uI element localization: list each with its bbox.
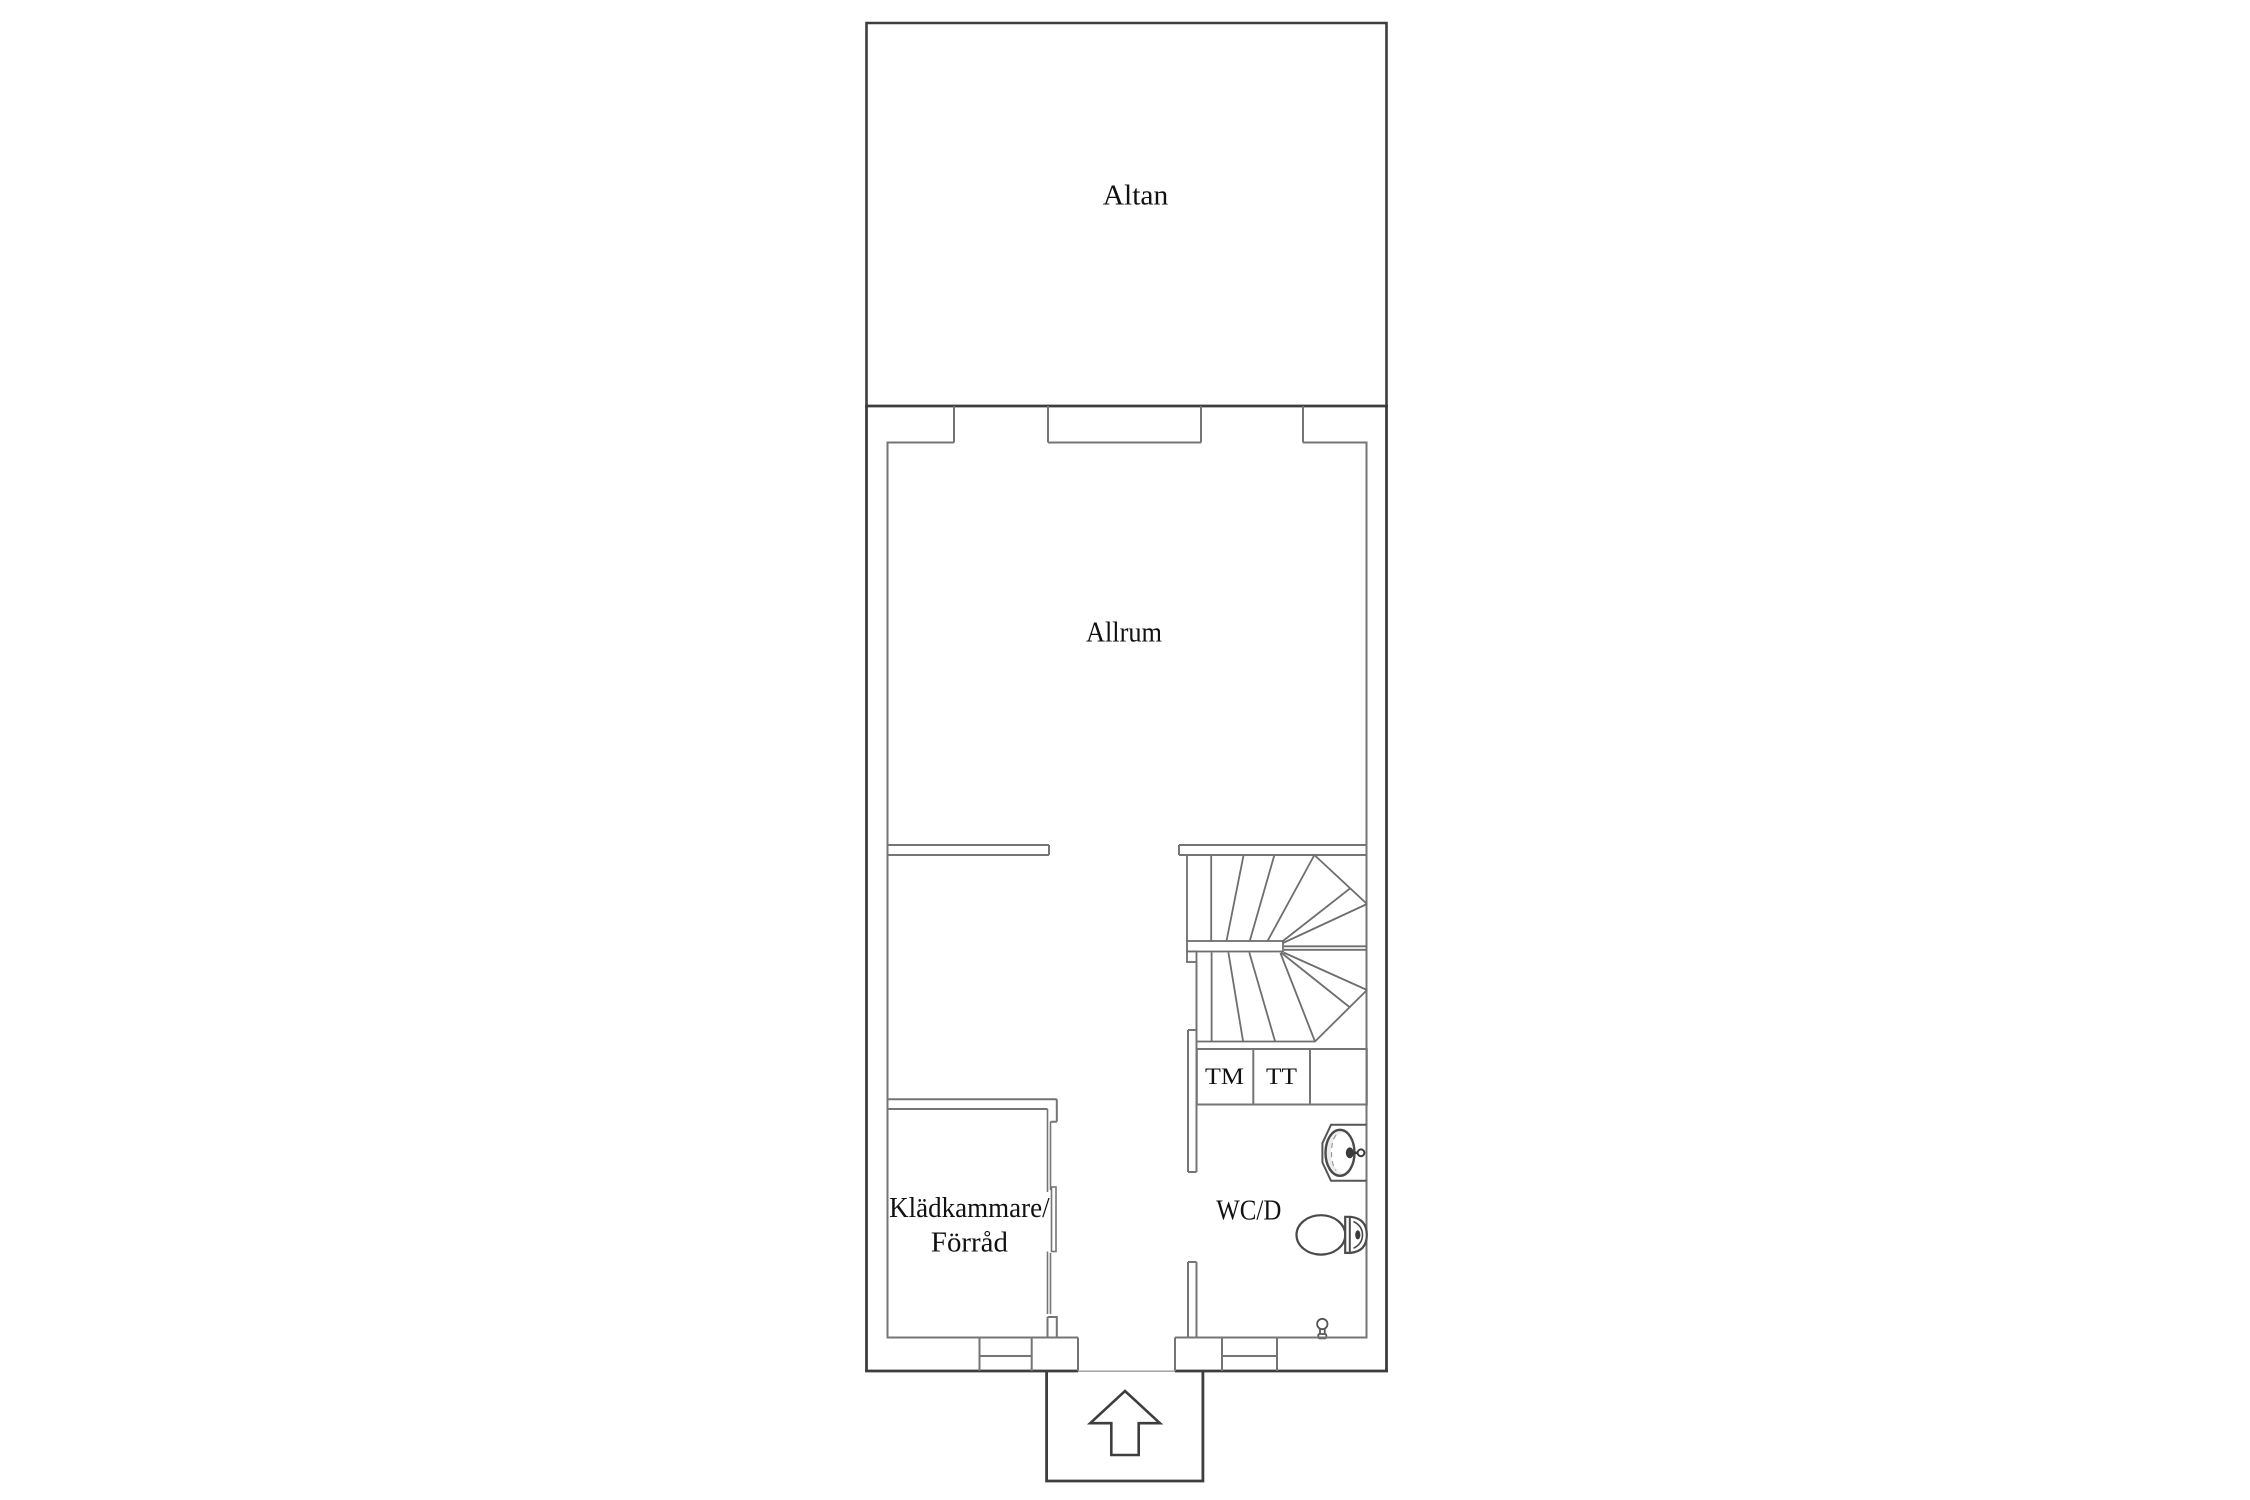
svg-text:Förråd: Förråd (931, 1227, 1008, 1259)
svg-text:WC/D: WC/D (1216, 1195, 1281, 1227)
svg-text:TT: TT (1266, 1064, 1297, 1089)
svg-text:Altan: Altan (1103, 180, 1169, 212)
svg-text:TM: TM (1205, 1064, 1244, 1089)
svg-text:Allrum: Allrum (1086, 617, 1162, 649)
svg-text:Klädkammare/: Klädkammare/ (889, 1192, 1050, 1224)
